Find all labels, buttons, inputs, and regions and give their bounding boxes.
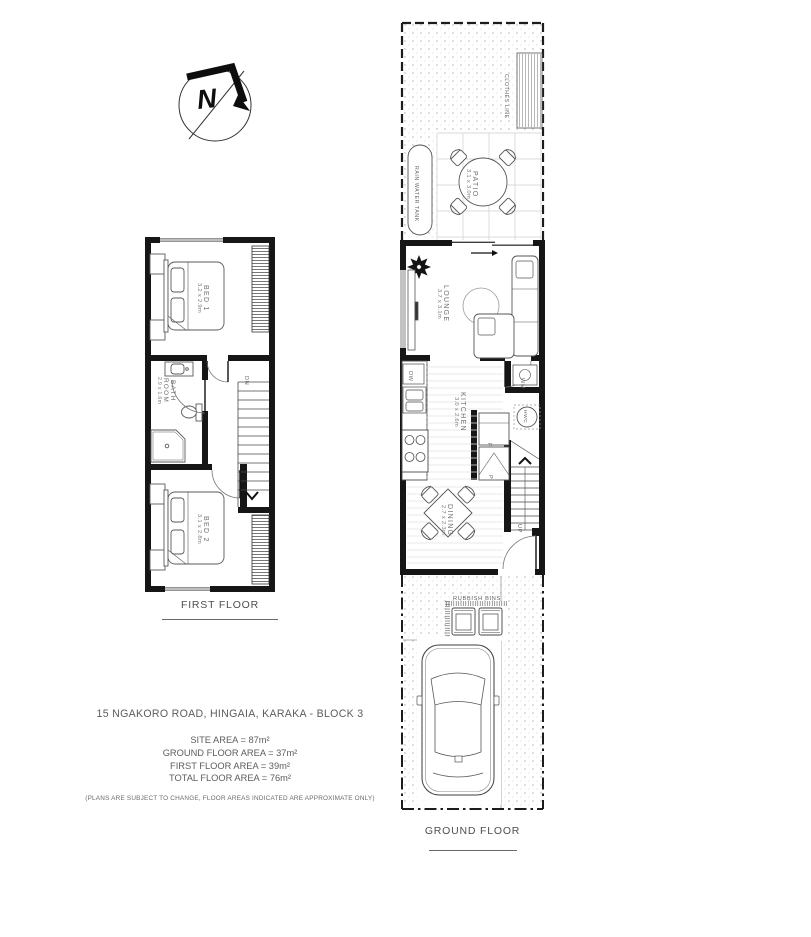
stairs-up-label: UP (516, 520, 522, 536)
lounge-dims: 3.7 x 3.1m (436, 272, 442, 336)
ground-floor-title-rule (429, 850, 517, 851)
bed2-dims: 3.1 x 2.8m (196, 496, 202, 562)
first-floor-title-rule (162, 619, 278, 620)
fridge-label: F (486, 438, 492, 452)
north-letter: N (195, 83, 218, 116)
dishwasher-label: DW (407, 366, 413, 386)
patio-label: PATIO 3.1 x 3.0m (465, 152, 478, 216)
plan-info-block: 15 NGAKORO ROAD, HINGAIA, KARAKA - BLOCK… (55, 708, 405, 802)
first-floor-plan (140, 232, 280, 597)
floor-plan-sheet: N (0, 0, 811, 937)
bed1-name: BED 1 (202, 265, 209, 331)
clothes-line-label: CLOTHES LINE (503, 60, 509, 132)
first-floor-title: FIRST FLOOR (150, 599, 290, 611)
washing-machine (513, 365, 537, 385)
bed2-wardrobe (252, 515, 269, 584)
address-line: 15 NGAKORO ROAD, HINGAIA, KARAKA - BLOCK… (55, 708, 405, 720)
kitchen-name: KITCHEN (459, 383, 466, 441)
hwc-label: HWC (522, 406, 527, 428)
pantry (479, 447, 509, 480)
pantry-label: P (487, 470, 493, 484)
dining-dims: 2.7 x 2.3m (440, 492, 446, 548)
bed1-wardrobe (252, 246, 269, 332)
stairs-ground-floor (511, 441, 539, 530)
rubbish-bin (479, 608, 502, 635)
fridge (479, 413, 509, 445)
dining-name: DINING (446, 492, 453, 548)
kitchen-counter (402, 361, 428, 480)
sofa (474, 256, 538, 358)
rubbish-bin (452, 608, 475, 635)
bed-2 (150, 484, 224, 570)
stove (402, 430, 428, 472)
car (417, 637, 501, 805)
bathroom-name: BATH ROOM (162, 370, 176, 412)
bed1-door (207, 361, 228, 382)
first-floor-area: FIRST FLOOR AREA = 39m² (55, 760, 405, 773)
hot-water-cylinder (514, 405, 540, 429)
tv-unit (408, 270, 418, 350)
total-floor-area: TOTAL FLOOR AREA = 76m² (55, 772, 405, 785)
stairs-dn-label: DN (243, 373, 249, 389)
patio-slider-door (452, 242, 533, 256)
clothes-line (517, 53, 542, 128)
ground-floor-title: GROUND FLOOR (400, 825, 545, 837)
dining-label: DINING 2.7 x 2.3m (440, 492, 453, 548)
bed1-dims: 3.2 x 2.9m (196, 265, 202, 331)
bathroom-label: BATH ROOM 2.9 x 1.6m (156, 370, 176, 412)
rubbish-bins-area (445, 601, 507, 641)
rubbish-bins-label: RUBBISH BINS (432, 596, 522, 602)
kitchen-label: KITCHEN 3.0 x 2.6m (453, 383, 466, 441)
rain-water-tank-label: RAIN WATER TANK (413, 153, 419, 235)
bed2-label: BED 2 3.1 x 2.8m (196, 496, 209, 562)
lounge-label: LOUNGE 3.7 x 3.1m (436, 272, 449, 336)
north-compass-icon (170, 55, 270, 155)
patio-dims: 3.1 x 3.0m (465, 152, 471, 216)
lounge-window (400, 270, 406, 348)
patio-name: PATIO (471, 152, 478, 216)
site-area: SITE AREA = 87m² (55, 734, 405, 747)
bed2-name: BED 2 (202, 496, 209, 562)
disclaimer: (PLANS ARE SUBJECT TO CHANGE, FLOOR AREA… (55, 795, 405, 802)
bathroom-dims: 2.9 x 1.6m (156, 370, 162, 412)
washing-machine-label: WM (519, 374, 525, 394)
lounge-name: LOUNGE (442, 272, 449, 336)
kitchen-sink (403, 387, 426, 413)
ground-floor-area: GROUND FLOOR AREA = 37m² (55, 747, 405, 760)
rain-water-tank (408, 145, 432, 235)
bed1-label: BED 1 3.2 x 2.9m (196, 265, 209, 331)
bed-1 (150, 254, 224, 340)
